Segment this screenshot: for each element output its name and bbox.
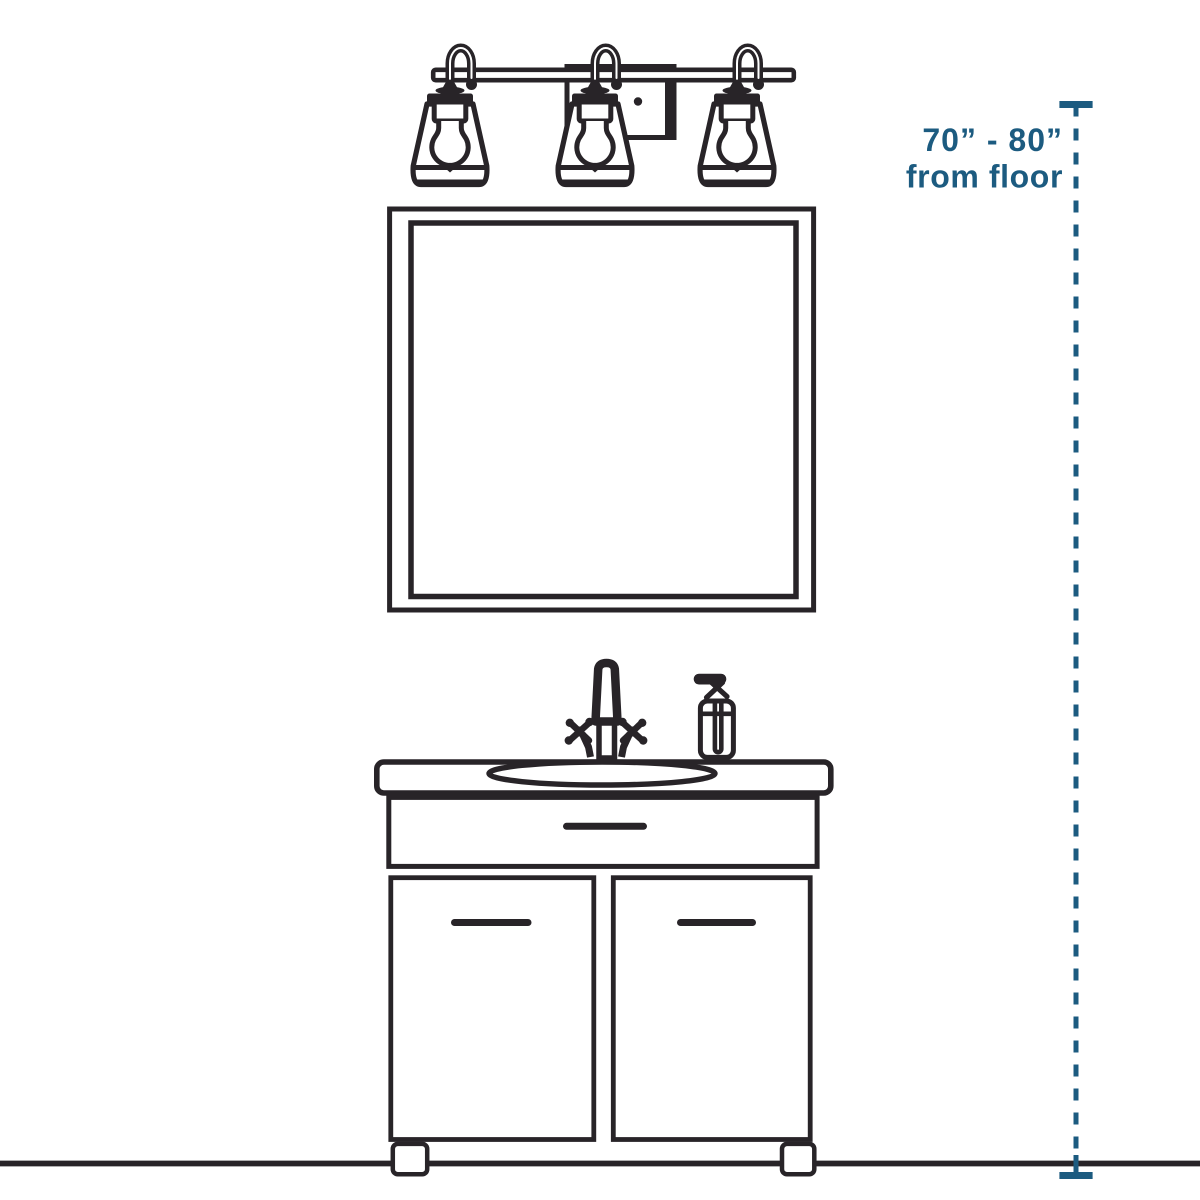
svg-text:from floor: from floor	[906, 159, 1063, 195]
svg-text:70” - 80”: 70” - 80”	[922, 122, 1063, 158]
